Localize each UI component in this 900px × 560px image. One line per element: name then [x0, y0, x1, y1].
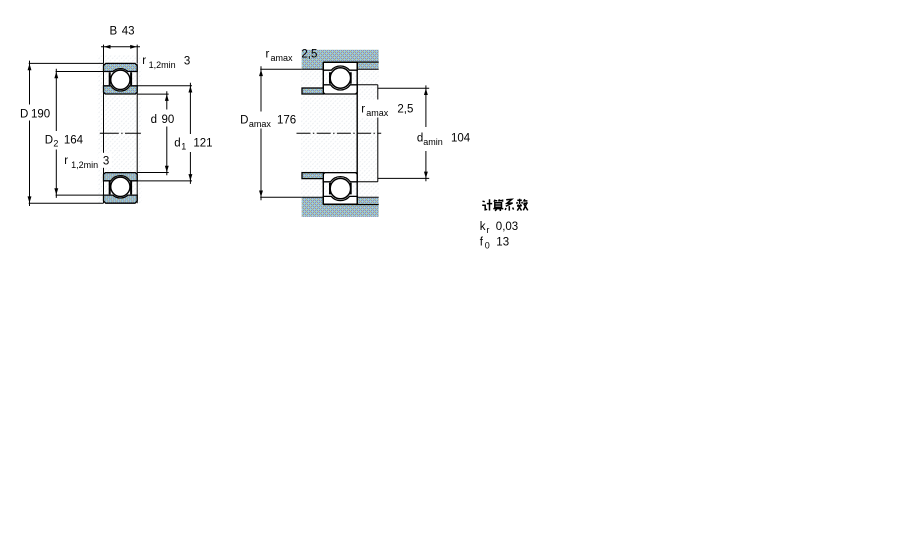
svg-text:r: r [142, 55, 146, 67]
svg-text:d: d [174, 137, 180, 149]
svg-text:D: D [45, 134, 53, 146]
svg-text:B: B [110, 26, 118, 38]
svg-text:r: r [64, 155, 68, 167]
svg-text:D: D [20, 109, 28, 121]
svg-text:amin: amin [423, 137, 443, 147]
svg-text:121: 121 [193, 137, 212, 149]
svg-text:d: d [151, 114, 157, 126]
svg-text:90: 90 [162, 114, 175, 126]
svg-text:k: k [480, 221, 486, 233]
svg-text:r: r [266, 48, 270, 60]
svg-text:f: f [480, 237, 484, 249]
svg-text:1,2min: 1,2min [71, 160, 98, 170]
svg-text:0,03: 0,03 [496, 221, 518, 233]
svg-text:3: 3 [103, 155, 109, 167]
svg-text:43: 43 [122, 26, 135, 38]
svg-text:amax: amax [271, 53, 294, 63]
svg-text:164: 164 [64, 134, 84, 146]
svg-text:amax: amax [249, 119, 272, 129]
svg-text:amax: amax [366, 108, 389, 118]
svg-text:2,5: 2,5 [301, 48, 317, 60]
svg-text:1,2min: 1,2min [149, 60, 176, 70]
svg-text:176: 176 [277, 114, 296, 126]
svg-text:2,5: 2,5 [397, 103, 413, 115]
svg-text:3: 3 [184, 55, 190, 67]
svg-text:104: 104 [451, 133, 471, 145]
svg-text:13: 13 [496, 237, 509, 249]
svg-text:2: 2 [53, 139, 58, 149]
svg-text:r: r [361, 103, 365, 115]
svg-text:D: D [240, 114, 248, 126]
svg-text:1: 1 [181, 142, 186, 152]
svg-text:0: 0 [485, 241, 490, 251]
svg-text:190: 190 [31, 109, 50, 121]
svg-text:r: r [486, 225, 489, 235]
